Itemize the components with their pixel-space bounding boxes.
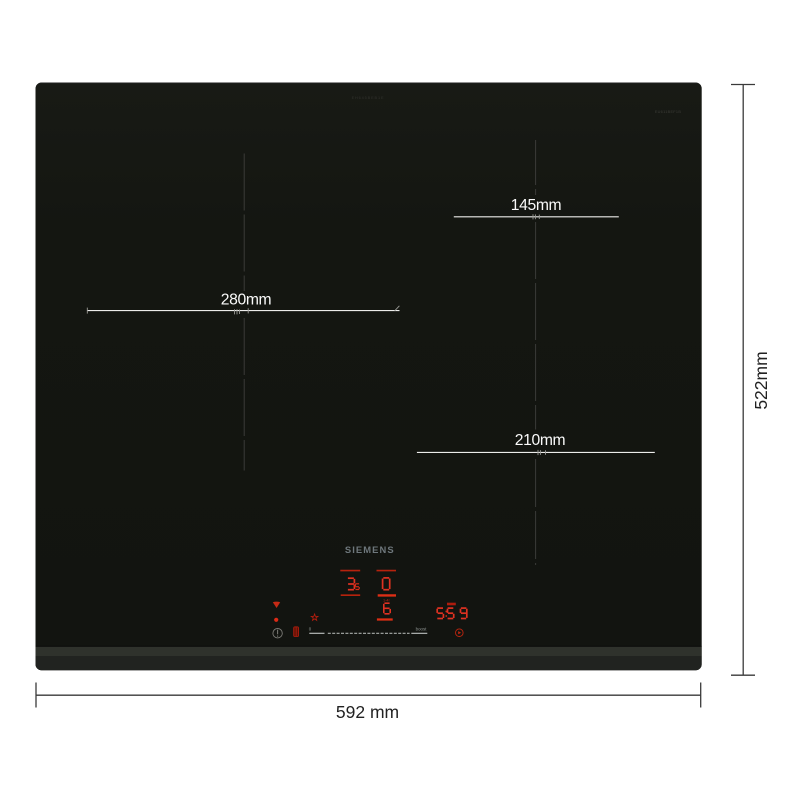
svg-text:1-4!: 1-4!	[383, 598, 390, 602]
svg-text:SIEMENS: SIEMENS	[345, 544, 395, 555]
svg-text:280mm: 280mm	[221, 292, 272, 309]
svg-text:522mm: 522mm	[751, 351, 771, 409]
svg-text:592 mm: 592 mm	[336, 702, 399, 722]
svg-text:EH645BEB1E: EH645BEB1E	[352, 96, 385, 100]
svg-text:210mm: 210mm	[515, 432, 566, 449]
svg-text:145mm: 145mm	[511, 197, 562, 214]
svg-text:EU611BEF1B: EU611BEF1B	[655, 110, 682, 114]
svg-text:boost: boost	[416, 626, 428, 631]
